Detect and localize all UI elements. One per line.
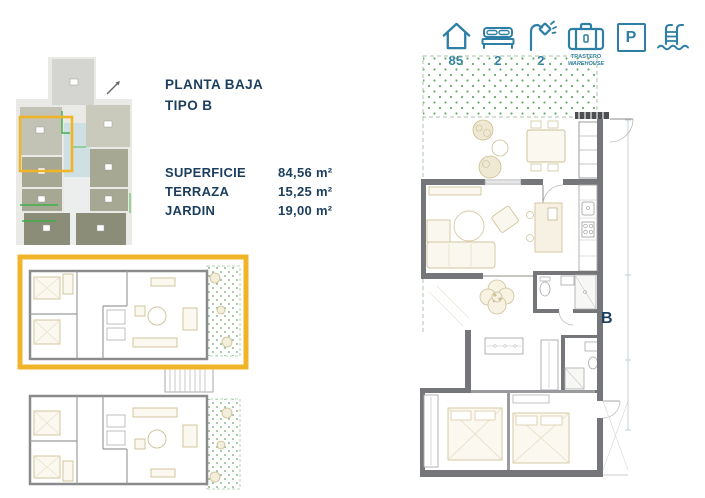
terrace-furniture: [473, 120, 565, 178]
page-title-line1: PLANTA BAJA: [165, 74, 355, 95]
page-title-line2: TIPO B: [165, 95, 355, 116]
house-icon: [440, 16, 473, 52]
pool-ladder-icon: [656, 16, 694, 52]
north-arrow-icon: [107, 81, 120, 94]
area-row-superficie: SUPERFICIE 84,56 m²: [165, 163, 355, 182]
garden-area: [423, 56, 597, 117]
area-row-terraza: TERRAZA 15,25 m²: [165, 182, 355, 201]
trunk-icon: [565, 16, 607, 52]
overview-floorplan: [15, 250, 330, 498]
patio-planter: [429, 280, 514, 326]
kitchen-counter: [579, 185, 597, 271]
bedroom2: [513, 395, 569, 463]
shower-icon: [525, 16, 557, 52]
area-table: SUPERFICIE 84,56 m² TERRAZA 15,25 m² JAR…: [165, 163, 355, 220]
bed-icon: [480, 16, 516, 52]
feature-pool: [652, 16, 698, 52]
feature-parking: P: [610, 16, 652, 52]
bathroom1: [533, 271, 603, 325]
bathroom2: [561, 335, 603, 393]
parking-icon: P: [617, 16, 646, 52]
living-furniture: [427, 187, 562, 268]
floorplan-sheet: 85 2 2: [0, 0, 705, 498]
unit-type-label: B: [601, 310, 613, 328]
bedroom1: [424, 395, 502, 467]
detail-floorplan: [415, 50, 645, 495]
keyplan-siteplan: [12, 55, 140, 248]
stairwell: [165, 368, 213, 392]
area-row-jardin: JARDIN 19,00 m²: [165, 201, 355, 220]
dimension-line: [625, 120, 631, 430]
plan-info: PLANTA BAJA TIPO B SUPERFICIE 84,56 m² T…: [165, 74, 355, 220]
parking-letter: P: [626, 29, 637, 47]
